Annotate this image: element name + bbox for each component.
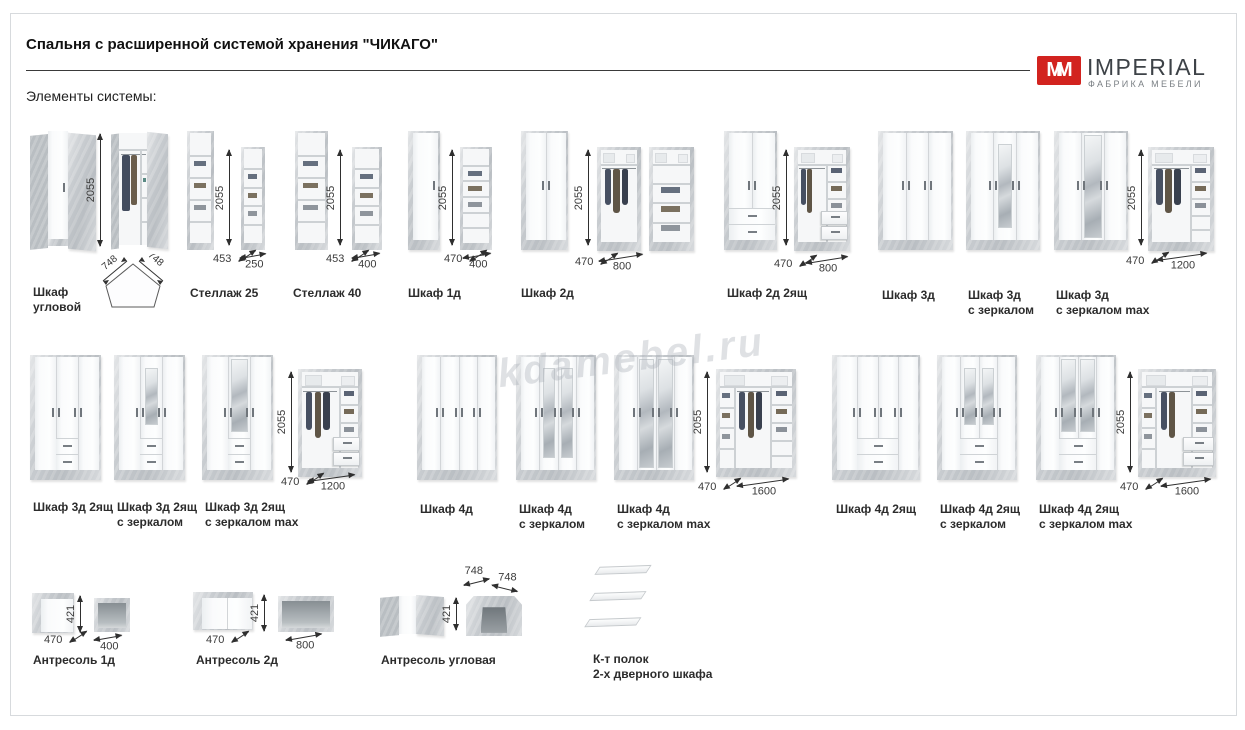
hanging-clothes [605, 169, 611, 205]
door-handle [74, 408, 76, 417]
hanging-clothes [1174, 169, 1181, 205]
wardrobe-doors [1059, 133, 1126, 240]
shkaf-4d-zerkalo-max-closed-view [614, 355, 694, 480]
arrowhead-up [288, 371, 294, 378]
wardrobe-interior [601, 150, 637, 242]
door-handle [442, 408, 444, 417]
shkaf-2d-shelves-open-view [649, 147, 694, 251]
antresol-front [202, 598, 252, 629]
door-handle [252, 408, 254, 417]
stored-item [1195, 203, 1205, 208]
hanging-clothes [807, 169, 812, 213]
hanging-clothes [739, 392, 745, 430]
storage-box [1193, 154, 1207, 163]
antresol-cavity [98, 603, 126, 628]
door-handle [962, 408, 964, 417]
arrowhead-left [1160, 482, 1168, 489]
shelf-interior [190, 133, 211, 243]
stored-item [661, 225, 680, 231]
drawer-front [228, 438, 249, 454]
shkaf-2d-closed-view [521, 131, 568, 250]
antresol-2d-label: Антресоль 2д [196, 653, 278, 668]
wardrobe-interior [1142, 372, 1212, 468]
shelf [463, 212, 489, 214]
dim-value: 470 [206, 634, 224, 646]
wardrobe-interior [798, 150, 846, 242]
storage-box [603, 153, 614, 163]
right-shelf-column [1190, 164, 1210, 242]
shkaf-4d-label-line: Шкаф 4д [420, 502, 473, 517]
arrowhead-down [585, 239, 591, 246]
dim-value: 2055 [692, 410, 704, 434]
komplekt-polok-label-line: К-т полок [593, 652, 712, 667]
door-handle [455, 408, 457, 417]
shelf [720, 407, 734, 409]
shelf [1192, 181, 1210, 183]
hanging-clothes [122, 155, 129, 211]
shelf [720, 427, 734, 429]
door-handle [859, 408, 861, 417]
door-handle [1106, 181, 1108, 190]
arrowhead-down [1127, 466, 1133, 473]
stored-item [722, 413, 730, 418]
stellazh-25-far-open-shelf-view [241, 147, 265, 250]
shelf [355, 224, 379, 226]
wardrobe-interior [302, 372, 358, 468]
door-handle [1012, 181, 1014, 190]
antresol-1d-open-view [94, 598, 130, 632]
stored-item [468, 186, 482, 191]
stored-item [1144, 393, 1152, 398]
dim-value: 2055 [573, 185, 585, 209]
door-handle [473, 408, 475, 417]
door-handle [542, 181, 544, 190]
shkaf-3d-2yashch-zerkalo-label-line: Шкаф 3д 2ящ [117, 500, 197, 515]
stored-item [1144, 413, 1152, 418]
shkaf-3d-2yashch-zerkalo-max-closed-view [202, 355, 273, 480]
shkaf-uglovoy-label-line: Шкаф [33, 285, 81, 300]
komplekt-polok-label: К-т полок2-х дверного шкафа [593, 652, 712, 682]
shelf [190, 155, 211, 157]
shelf [772, 455, 792, 457]
antresol-uglovaya-label-line: Антресоль угловая [381, 653, 496, 668]
door-handle [461, 408, 463, 417]
corner-interior [119, 133, 148, 245]
door-handle [1061, 408, 1063, 417]
arrowhead-down [288, 466, 294, 473]
drawer-handle [975, 445, 984, 447]
width-dimension: 748 [492, 585, 517, 592]
shelf [463, 196, 489, 198]
door-handle [224, 408, 226, 417]
shkaf-4d-closed-view [417, 355, 497, 480]
stored-item [776, 409, 787, 414]
stored-item [831, 203, 842, 208]
dim-value: 2055 [771, 185, 783, 209]
shkaf-4d-2yashch-label: Шкаф 4д 2ящ [836, 502, 916, 517]
door-handle [1080, 408, 1082, 417]
arrowhead-up [77, 595, 83, 602]
door-handle [1098, 408, 1100, 417]
door-handle [975, 408, 977, 417]
arrowhead-down [226, 239, 232, 246]
door-handle [80, 408, 82, 417]
dim-value: 470 [1126, 255, 1144, 267]
shkaf-1d-closed-view [408, 131, 440, 250]
shelf [1192, 215, 1210, 217]
drawer-handle [235, 461, 244, 463]
wardrobe-doors [207, 357, 271, 470]
drawer-front [56, 438, 77, 454]
wardrobe-doors [422, 357, 495, 470]
arrowhead-up [226, 149, 232, 156]
door-handle [541, 408, 543, 417]
dim-value: 470 [44, 634, 62, 646]
shelf [463, 227, 489, 229]
dim-value: 470 [698, 481, 716, 493]
door-gap [227, 598, 228, 629]
antresol-2d-closed-view [193, 592, 253, 630]
shkaf-3d-zerkalo-closed-view [966, 131, 1040, 250]
stellazh-40-far-open-shelf-view [352, 147, 382, 250]
left-shelf-column [1142, 386, 1157, 468]
dim-value: 400 [100, 640, 118, 652]
dim-value: 421 [65, 605, 77, 623]
height-dimension: 2055 [1141, 150, 1142, 245]
dim-value: 2055 [437, 185, 449, 209]
shelf [298, 155, 325, 157]
stored-item [722, 393, 730, 398]
wardrobe-doors [942, 357, 1015, 470]
shelf [772, 422, 792, 424]
dim-line [786, 150, 787, 245]
arrowhead-left [736, 482, 744, 489]
plan-dim-b: 748 [146, 254, 165, 269]
height-dimension: 2055 [1130, 372, 1131, 472]
shkaf-1d-label: Шкаф 1д [408, 286, 461, 301]
wardrobe-doors [837, 357, 918, 470]
drawer-handle [63, 445, 72, 447]
storage-box [626, 154, 635, 163]
door-handle [572, 408, 574, 417]
catalog-canvas: 2055748748Шкафугловой2055453250Стеллаж 2… [0, 0, 1245, 730]
arrowhead-left [1156, 256, 1164, 263]
stored-item [1196, 427, 1207, 432]
stored-item [661, 187, 680, 193]
stored-item [776, 391, 787, 396]
shelf [463, 180, 489, 182]
shkaf-3d-label-line: Шкаф 3д [882, 288, 935, 303]
drawer-zone [228, 438, 249, 470]
storage-box [832, 154, 844, 163]
dim-line [707, 372, 708, 472]
drawer-handle [1195, 442, 1204, 444]
door-handle [246, 408, 248, 417]
arrowhead-down [453, 624, 459, 631]
wardrobe-doors [729, 133, 775, 240]
shelf [653, 202, 690, 204]
stored-item [344, 409, 354, 414]
arrowhead-up [783, 149, 789, 156]
stellazh-25-label: Стеллаж 25 [190, 286, 258, 301]
shkaf-2d-hang-open-view [597, 147, 641, 251]
drawer-zone [857, 438, 898, 470]
wardrobe-interior [1152, 150, 1210, 242]
drawer-handle [343, 442, 352, 444]
stored-item [831, 186, 842, 191]
door-handle [639, 408, 641, 417]
open-drawer [821, 226, 848, 240]
drawer-zone [729, 208, 775, 240]
shkaf-uglovoy-label: Шкафугловой [33, 285, 81, 315]
shkaf-1d-open-shelf-view [460, 147, 492, 250]
open-drawer [821, 211, 848, 225]
arrowhead-down [449, 239, 455, 246]
arrowhead-left [284, 636, 292, 643]
shkaf-3d-zerkalo-label: Шкаф 3дс зеркалом [968, 288, 1034, 318]
door-handle [578, 408, 580, 417]
drawer-handle [1074, 461, 1083, 463]
drawer-handle [748, 215, 757, 217]
antresol-2d-label-line: Антресоль 2д [196, 653, 278, 668]
dim-line [588, 150, 589, 245]
shelf [653, 183, 690, 185]
wardrobe-doors [119, 357, 183, 470]
stored-item [248, 211, 258, 216]
dim-line [452, 150, 453, 245]
drawer-handle [1074, 445, 1083, 447]
drawer-handle [1195, 457, 1204, 459]
shelf [244, 205, 262, 207]
komplekt-polok-view [585, 565, 657, 633]
hanging-clothes [315, 392, 322, 438]
mirror-panel [1061, 359, 1076, 431]
arrowhead-up [1138, 149, 1144, 156]
dim-line [100, 134, 101, 246]
left-shelf-column [720, 386, 736, 468]
dim-value: 800 [613, 260, 631, 272]
stored-item [468, 202, 482, 207]
drawer-front [56, 454, 77, 470]
wardrobe-doors [1041, 357, 1114, 470]
dim-line [340, 150, 341, 245]
door-handle [900, 408, 902, 417]
stored-item [194, 205, 206, 210]
door-handle [58, 408, 60, 417]
shkaf-4d-zerkalo-label-line: Шкаф 4д [519, 502, 585, 517]
door-handle [880, 408, 882, 417]
dim-value: 400 [358, 258, 376, 270]
arrowhead-down [704, 466, 710, 473]
door-handle [52, 408, 54, 417]
shkaf-4d-2yashch-zerkalo-max-label: Шкаф 4д 2ящс зеркалом max [1039, 502, 1132, 532]
shkaf-3d-zerkalo-max-label-line: с зеркалом max [1056, 303, 1149, 318]
shelf [463, 165, 489, 167]
hanging-zone [736, 386, 771, 468]
drawer-front [729, 208, 775, 224]
stored-item [303, 183, 318, 188]
shelf [1192, 229, 1210, 231]
shkaf-4d-2yashch-zerkalo-label-line: Шкаф 4д 2ящ [940, 502, 1020, 517]
shkaf-4d-zerkalo-closed-view [516, 355, 596, 480]
arrowhead-left [597, 257, 605, 264]
shkaf-2d-2yashch-label-line: Шкаф 2д 2ящ [727, 286, 807, 301]
komplekt-polok-label-line: 2-х дверного шкафа [593, 667, 712, 682]
drawer-front [960, 438, 997, 454]
door-handle [1077, 181, 1079, 190]
dim-line [1130, 372, 1131, 472]
dim-value: 421 [441, 605, 453, 623]
top-shelf [653, 164, 690, 166]
shkaf-3d-2yashch-zerkalo-max-label: Шкаф 3д 2ящс зеркалом max [205, 500, 298, 530]
shelf [653, 222, 690, 224]
dim-value: 470 [575, 256, 593, 268]
storage-box [1192, 376, 1208, 386]
door-handle [1092, 408, 1094, 417]
arrowhead-right [115, 632, 123, 639]
shkaf-uglovoy-plan-view: 748748 [101, 254, 165, 310]
corner-left-face [111, 134, 119, 250]
door-handle [748, 181, 750, 190]
hanging-clothes [1165, 169, 1172, 213]
drawer-front [960, 454, 997, 470]
shelf [244, 168, 262, 170]
arrowhead-up [704, 371, 710, 378]
dim-value: 453 [326, 253, 344, 265]
shelf [355, 187, 379, 189]
shelf [772, 440, 792, 442]
drawer-handle [748, 231, 757, 233]
shelf-interior [244, 149, 262, 243]
antresol-1d-label: Антресоль 1д [33, 653, 115, 668]
stored-item [1196, 391, 1207, 396]
drawer-front [140, 454, 161, 470]
door-handle [652, 408, 654, 417]
stellazh-25-label-line: Стеллаж 25 [190, 286, 258, 301]
door-handle [908, 181, 910, 190]
door-handle [874, 408, 876, 417]
arrowhead-up [97, 133, 103, 140]
shelf [1192, 198, 1210, 200]
antresol-uglovaya-open-view [466, 596, 522, 636]
antresol-2d-open-view [278, 596, 334, 632]
mirror-panel [145, 368, 159, 425]
shelf [298, 221, 325, 223]
arrowhead-up [1127, 371, 1133, 378]
storage-box [678, 154, 687, 163]
shelf-panel [589, 591, 646, 601]
dim-value: 400 [469, 258, 487, 270]
hanging-clothes [1156, 169, 1163, 205]
door-handle [1083, 181, 1085, 190]
arrowhead-down [337, 239, 343, 246]
shelf [190, 177, 211, 179]
drawer-zone [1059, 438, 1096, 470]
height-dimension: 2055 [588, 150, 589, 245]
open-drawer [333, 452, 360, 466]
shkaf-4d-2yashch-zerkalo-label-line: с зеркалом [940, 517, 1020, 532]
hanging-zone [601, 164, 637, 242]
arrowhead-right [1204, 476, 1212, 483]
dim-value: 2055 [214, 185, 226, 209]
door-handle [1100, 181, 1102, 190]
stored-item [344, 391, 354, 396]
shkaf-2d-2yashch-open-view [794, 147, 850, 251]
shkaf-4d-2yashch-open-view [1138, 369, 1216, 477]
shelf [720, 448, 734, 450]
stored-item [303, 205, 318, 210]
mirror-panel [231, 359, 248, 431]
wardrobe-interior [720, 372, 792, 468]
dim-value: 1600 [752, 485, 776, 497]
door-handle [535, 408, 537, 417]
arrowhead-up [337, 149, 343, 156]
door-handle [1055, 408, 1057, 417]
drawer-zone [960, 438, 997, 470]
stored-item [360, 174, 373, 179]
stored-item [1144, 434, 1152, 439]
door-handle [754, 181, 756, 190]
arrowhead-left [307, 477, 315, 484]
door-handle [902, 181, 904, 190]
door-handle [560, 408, 562, 417]
shelf-interior [298, 133, 325, 243]
corner-right-face [416, 595, 444, 636]
antresol-cavity [282, 601, 330, 628]
shkaf-3d-2yashch-zerkalo-closed-view [114, 355, 185, 480]
shkaf-3d-2yashch-label: Шкаф 3д 2ящ [33, 500, 113, 515]
stored-item [303, 161, 318, 166]
shkaf-uglovoy-label-line: угловой [33, 300, 81, 315]
drawer-front [857, 438, 898, 454]
dim-value: 800 [819, 263, 837, 275]
door-handle [995, 181, 997, 190]
shelf [828, 181, 846, 183]
arrowhead-up [449, 149, 455, 156]
shkaf-4d-zerkalo-max-label-line: с зеркалом max [617, 517, 710, 532]
wardrobe-doors [521, 357, 594, 470]
shkaf-2d-2yashch-label: Шкаф 2д 2ящ [727, 286, 807, 301]
storage-box [1155, 153, 1172, 163]
stored-item [360, 193, 373, 198]
shkaf-4d-zerkalo-label-line: с зеркалом [519, 517, 585, 532]
antresol-uglovaya-closed-view [380, 594, 444, 636]
door-handle [433, 181, 435, 190]
dim-value: 800 [296, 640, 314, 652]
height-dimension: 2055 [291, 372, 292, 472]
stored-item [344, 427, 354, 432]
door-handle [676, 408, 678, 417]
hanging-clothes [306, 392, 313, 430]
depth-arrow [232, 631, 249, 643]
wardrobe-interior [653, 150, 690, 242]
hanging-clothes [613, 169, 619, 213]
open-drawer [1183, 437, 1214, 451]
shkaf-2d-2yashch-closed-view [724, 131, 777, 250]
stored-item [194, 183, 206, 188]
drawer-handle [147, 461, 156, 463]
dim-value: 1200 [320, 481, 344, 493]
corner-left-face [30, 134, 48, 250]
shkaf-4d-2yashch-closed-view [832, 355, 920, 480]
dim-value: 250 [245, 259, 263, 271]
drawer-front [228, 454, 249, 470]
stellazh-40-label-line: Стеллаж 40 [293, 286, 361, 301]
arrowhead-right [511, 587, 519, 595]
dim-line [291, 372, 292, 472]
shkaf-uglovoy-open-view [111, 131, 168, 250]
storage-box [801, 153, 815, 163]
